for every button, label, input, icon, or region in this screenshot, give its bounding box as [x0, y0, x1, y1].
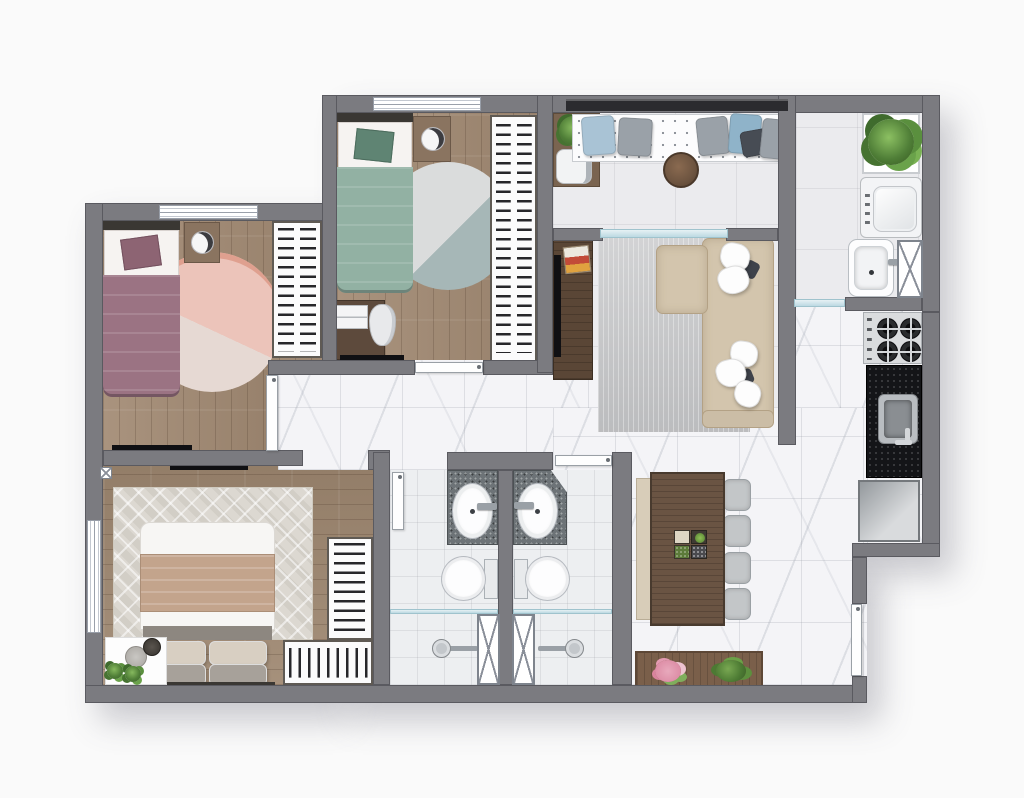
- burner: [900, 318, 921, 339]
- wall-bathroom2-right: [612, 452, 632, 685]
- washer-controls: [864, 190, 871, 228]
- burner: [877, 318, 898, 339]
- hanging-clothes-rack: [276, 225, 296, 354]
- sofa-chaise: [656, 245, 708, 314]
- wall-bathroom-divider: [498, 470, 513, 685]
- master-plant-pot: [107, 663, 123, 679]
- wall-laundry-kitchen: [845, 297, 922, 311]
- bedroom2-window: [373, 97, 481, 111]
- wall-bedroom2-left: [322, 95, 337, 375]
- wall-bedroom2-right: [537, 95, 553, 373]
- planter-flowers-pink: [655, 660, 681, 682]
- bathroom1-window: [477, 614, 500, 685]
- burner: [877, 341, 898, 362]
- bedroom1-headboard: [103, 221, 180, 230]
- bathroom2-shower-arm: [538, 646, 568, 651]
- bedroom2-headboard: [337, 113, 413, 122]
- balcony-round-table: [663, 152, 699, 188]
- entrance-door: [851, 604, 862, 676]
- kitchen-faucet: [895, 440, 912, 445]
- column-symbol: [100, 467, 112, 479]
- wall-right-mid: [922, 312, 940, 557]
- master-bed-throw: [140, 554, 275, 612]
- wall-balcony-stub-left: [553, 228, 603, 241]
- hanging-clothes-rack: [331, 541, 369, 636]
- dining-chair: [723, 588, 751, 620]
- master-wardrobe-horizontal: [283, 640, 373, 685]
- bedroom2-wardrobe: [490, 115, 537, 362]
- dining-chair: [723, 515, 751, 547]
- centerpiece-tray-moss: [674, 545, 690, 559]
- tray-plant: [695, 533, 705, 543]
- bathroom1-sink: [452, 483, 493, 539]
- bedroom2-blanket: [337, 167, 413, 293]
- centerpiece-tray-dark: [691, 545, 707, 559]
- bathroom2-faucet: [514, 502, 534, 509]
- balcony-cushion-gray: [695, 115, 731, 156]
- laundry-tub-drain: [869, 270, 874, 275]
- bedroom1-wardrobe: [272, 221, 322, 358]
- kitchen-counter: [866, 365, 922, 478]
- burner: [900, 341, 921, 362]
- laundry-plant: [868, 119, 914, 165]
- bathroom2-window: [512, 614, 535, 685]
- bathroom2-sink: [517, 483, 558, 539]
- dining-chair: [723, 479, 751, 511]
- balcony-cushion-gray: [617, 117, 653, 157]
- bedroom1-lamp: [191, 231, 214, 254]
- bedroom2-cushion: [353, 128, 394, 163]
- laundry-sliding-glass-door: [794, 299, 845, 307]
- wall-balcony-stub-right: [726, 228, 778, 241]
- bathroom1-door: [392, 472, 404, 530]
- laundry-tub-basin: [854, 246, 888, 290]
- floor-plan: [0, 0, 1024, 798]
- planter-shrub: [716, 660, 746, 682]
- washing-machine: [860, 177, 922, 238]
- wall-living-laundry: [778, 95, 796, 445]
- hanging-clothes-rack: [515, 119, 533, 358]
- bathroom2-toilet: [525, 556, 570, 601]
- wall-master-top: [103, 450, 303, 466]
- wall-entry-upper: [852, 557, 867, 604]
- master-pillow-beige: [209, 641, 267, 665]
- centerpiece-tray-plant: [691, 530, 707, 544]
- bedroom2-desk-chair: [369, 304, 396, 346]
- bathroom1-shower-arm: [448, 646, 478, 651]
- centerpiece-tray-cream: [674, 530, 690, 544]
- cooktop-knobs: [865, 318, 873, 360]
- wall-right-upper: [922, 95, 940, 312]
- wall-bottom: [85, 685, 867, 703]
- bedroom2-desk-books: [336, 305, 368, 329]
- wall-entry-lower: [852, 676, 867, 703]
- hanging-clothes-rack: [287, 644, 369, 681]
- balcony-sliding-glass-door: [600, 229, 728, 238]
- bedroom2-lamp: [421, 127, 445, 151]
- hanging-clothes-rack: [298, 225, 318, 354]
- master-window: [87, 520, 101, 633]
- cooktop: [863, 312, 922, 364]
- balcony-railing: [566, 99, 788, 111]
- bedroom1-cushion: [120, 235, 162, 271]
- living-tv: [554, 255, 561, 357]
- wall-bathrooms-top: [447, 452, 553, 470]
- bedroom1-blanket: [103, 275, 180, 397]
- bedroom2-door: [415, 362, 483, 373]
- washer-lid: [873, 186, 917, 232]
- bathroom1-toilet: [441, 556, 486, 601]
- wall-bathroom1-left: [373, 452, 390, 685]
- bathroom1-faucet: [477, 503, 497, 510]
- laundry-window: [897, 240, 923, 298]
- kitchen-cabinet: [858, 480, 920, 542]
- bathroom2-shower-head: [565, 639, 584, 658]
- dining-chair: [723, 552, 751, 584]
- laundry-tub: [848, 239, 894, 297]
- balcony-cushion-blue: [581, 115, 617, 156]
- master-plant-pot: [125, 666, 141, 682]
- sofa-arm: [702, 410, 774, 428]
- bathroom1-toilet-tank: [484, 559, 498, 599]
- wall-kitchen-bottom: [852, 543, 940, 557]
- bedroom1-window: [159, 205, 258, 219]
- wall-bedroom2-bottom-left: [268, 360, 415, 375]
- master-wardrobe-vertical: [327, 537, 373, 640]
- bedroom1-door: [266, 375, 278, 451]
- master-table-vase: [143, 638, 161, 656]
- living-decor-tray: [563, 245, 592, 275]
- dining-table: [650, 472, 725, 626]
- bathroom1-shower-head: [432, 639, 451, 658]
- bathroom2-door: [555, 455, 612, 466]
- hanging-clothes-rack: [494, 119, 512, 358]
